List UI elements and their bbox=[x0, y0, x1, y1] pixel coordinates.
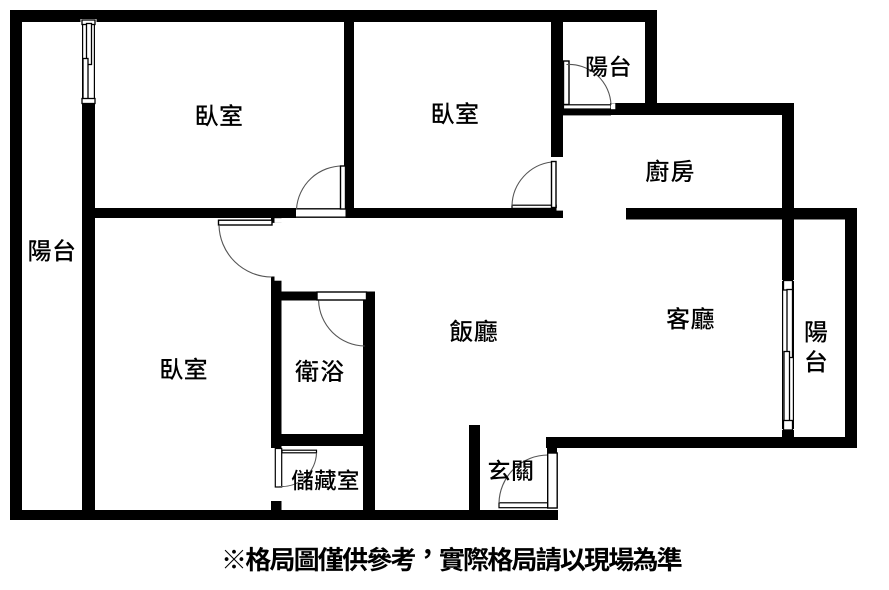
svg-text:飯廳: 飯廳 bbox=[449, 312, 498, 347]
svg-text:臥室: 臥室 bbox=[195, 97, 244, 132]
svg-text:客廳: 客廳 bbox=[666, 300, 715, 335]
svg-text:臥室: 臥室 bbox=[159, 350, 208, 385]
svg-text:玄關: 玄關 bbox=[488, 452, 535, 486]
svg-text:儲藏室: 儲藏室 bbox=[291, 464, 359, 496]
svg-text:臥室: 臥室 bbox=[431, 95, 480, 130]
svg-text:廚房: 廚房 bbox=[645, 152, 695, 187]
svg-text:陽台: 陽台 bbox=[28, 232, 77, 267]
svg-text:台: 台 bbox=[804, 342, 829, 377]
svg-text:陽台: 陽台 bbox=[585, 48, 632, 82]
svg-text:衛浴: 衛浴 bbox=[295, 352, 345, 387]
svg-text:※格局圖僅供參考，實際格局請以現場為準: ※格局圖僅供參考，實際格局請以現場為準 bbox=[221, 534, 682, 577]
